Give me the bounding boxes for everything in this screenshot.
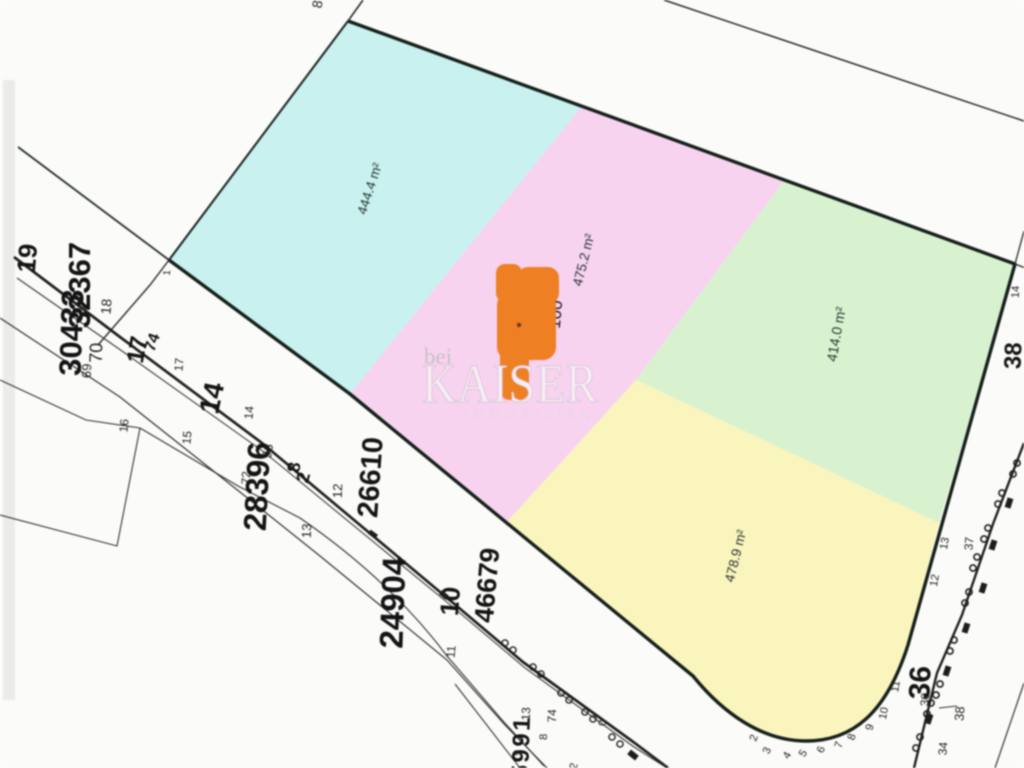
svg-text:0: 0	[597, 720, 609, 727]
svg-text:10: 10	[434, 586, 466, 617]
svg-text:34: 34	[935, 741, 950, 756]
svg-text:38: 38	[951, 706, 967, 722]
svg-text:15: 15	[179, 430, 194, 445]
svg-text:13: 13	[299, 523, 314, 538]
svg-text:11: 11	[443, 645, 458, 659]
svg-text:10: 10	[877, 706, 891, 720]
svg-text:12: 12	[928, 573, 942, 587]
svg-text:13: 13	[938, 536, 952, 550]
svg-text:KAISER: KAISER	[422, 354, 598, 415]
svg-text:IMMOBILIEN: IMMOBILIEN	[464, 407, 596, 422]
svg-text:69: 69	[79, 363, 94, 378]
svg-text:24904: 24904	[372, 555, 412, 649]
svg-text:18: 18	[97, 298, 114, 315]
svg-text:12: 12	[330, 483, 345, 498]
svg-text:72: 72	[239, 471, 253, 485]
svg-text:11: 11	[889, 680, 903, 693]
svg-text:5991: 5991	[507, 715, 536, 768]
svg-text:38: 38	[1000, 342, 1024, 370]
svg-text:13: 13	[519, 707, 533, 721]
svg-text:14: 14	[1010, 286, 1022, 299]
svg-text:37: 37	[961, 536, 976, 551]
svg-text:14: 14	[241, 405, 256, 420]
svg-text:96: 96	[259, 443, 276, 460]
svg-text:26610: 26610	[352, 436, 390, 519]
svg-text:74: 74	[545, 709, 559, 723]
svg-text:16: 16	[116, 418, 131, 433]
svg-text:19: 19	[11, 243, 43, 274]
svg-text:70: 70	[86, 342, 107, 363]
svg-text:8: 8	[309, 0, 326, 9]
svg-text:9: 9	[512, 750, 524, 757]
svg-text:17: 17	[171, 357, 186, 372]
svg-text:8: 8	[538, 734, 550, 741]
